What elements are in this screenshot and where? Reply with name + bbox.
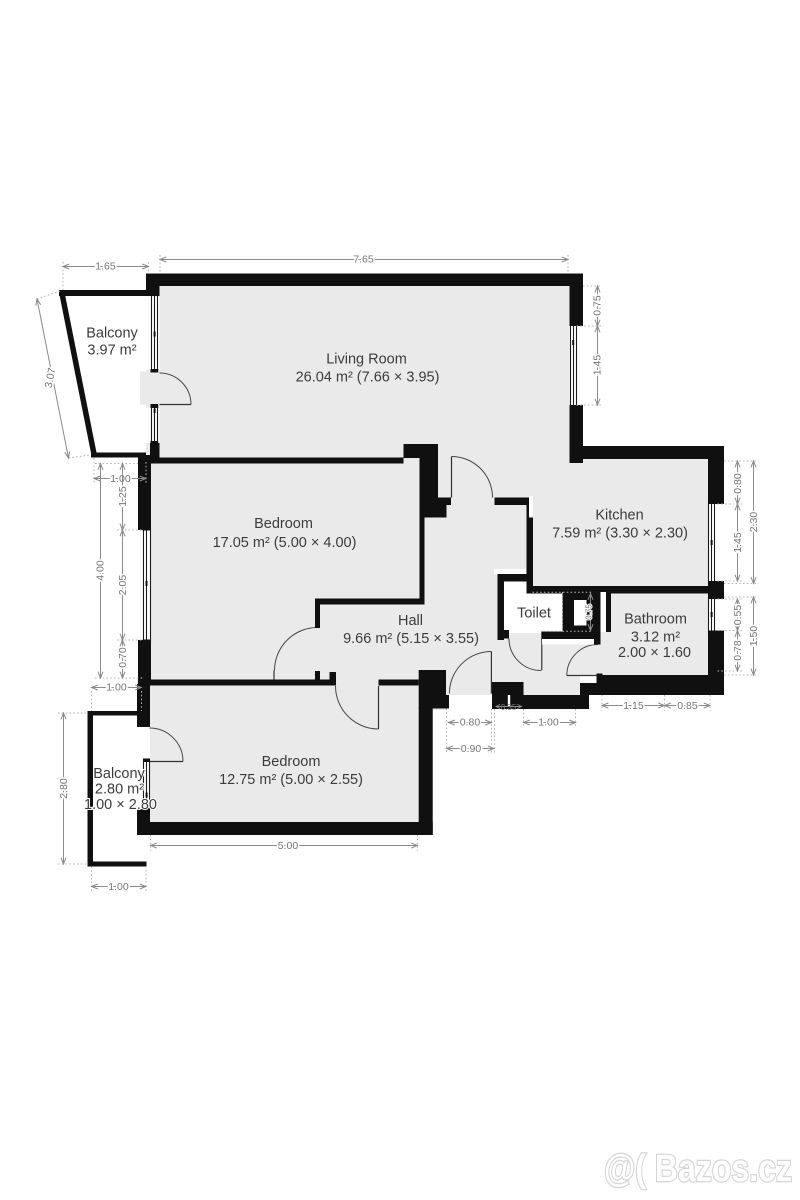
svg-text:2.05: 2.05 (117, 575, 129, 596)
svg-text:26.04 m² (7.66 × 3.95): 26.04 m² (7.66 × 3.95) (296, 370, 440, 386)
svg-text:0.78: 0.78 (732, 640, 744, 661)
svg-text:2.80 m²: 2.80 m² (95, 782, 144, 798)
svg-text:1.50: 1.50 (748, 626, 760, 647)
svg-text:1.00: 1.00 (538, 717, 559, 729)
svg-text:Bedroom: Bedroom (262, 754, 321, 770)
svg-text:1.45: 1.45 (732, 532, 744, 553)
svg-text:2.80: 2.80 (58, 778, 70, 799)
svg-text:Bedroom: Bedroom (254, 516, 313, 532)
svg-text:1.25: 1.25 (117, 486, 129, 507)
svg-text:0.70: 0.70 (117, 647, 129, 668)
svg-text:9.66 m² (5.15 × 3.55): 9.66 m² (5.15 × 3.55) (343, 631, 479, 647)
svg-text:0.75: 0.75 (592, 295, 604, 316)
svg-text:Hall: Hall (398, 613, 423, 629)
svg-text:Toilet: Toilet (517, 606, 551, 622)
svg-text:1.00: 1.00 (106, 682, 127, 694)
svg-text:Bathroom: Bathroom (624, 612, 687, 628)
svg-text:7.65: 7.65 (353, 254, 374, 266)
svg-text:1.00: 1.00 (110, 473, 131, 485)
svg-text:2.30: 2.30 (748, 512, 760, 533)
svg-text:1.45: 1.45 (592, 355, 604, 376)
svg-text:Balcony: Balcony (93, 766, 145, 782)
svg-text:1.00 × 2.80: 1.00 × 2.80 (84, 797, 157, 813)
svg-text:17.05 m² (5.00 × 4.00): 17.05 m² (5.00 × 4.00) (213, 535, 357, 551)
svg-text:1.00: 1.00 (108, 881, 129, 893)
svg-text:0.80: 0.80 (732, 473, 744, 494)
svg-text:Living Room: Living Room (326, 352, 407, 368)
svg-text:5.00: 5.00 (278, 840, 299, 852)
svg-text:0.85: 0.85 (677, 700, 698, 712)
svg-text:0.75: 0.75 (585, 604, 594, 620)
svg-text:Balcony: Balcony (86, 326, 138, 342)
svg-text:3.12 m²: 3.12 m² (631, 630, 680, 646)
svg-text:3.97 m²: 3.97 m² (87, 343, 136, 359)
svg-text:1.65: 1.65 (95, 261, 116, 273)
svg-text:7.59 m² (3.30 × 2.30): 7.59 m² (3.30 × 2.30) (552, 526, 688, 542)
svg-text:0.80: 0.80 (460, 717, 481, 729)
svg-text:@( Bazos.cz: @( Bazos.cz (604, 1148, 792, 1190)
svg-text:0.35: 0.35 (501, 703, 517, 712)
svg-text:0.90: 0.90 (461, 743, 482, 755)
svg-text:4.00: 4.00 (95, 560, 107, 581)
svg-text:2.00 × 1.60: 2.00 × 1.60 (618, 645, 691, 661)
svg-text:1.15: 1.15 (623, 700, 644, 712)
svg-text:0.55: 0.55 (732, 605, 744, 626)
svg-text:Kitchen: Kitchen (595, 508, 643, 524)
svg-text:12.75 m² (5.00 × 2.55): 12.75 m² (5.00 × 2.55) (219, 772, 363, 788)
